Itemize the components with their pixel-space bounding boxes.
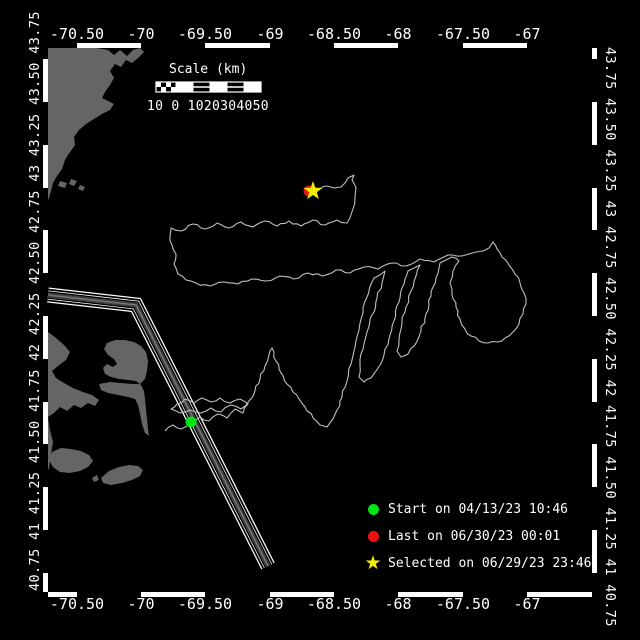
left-axis-labels: 40.75 41 41.25 41.50 41.75 42 42.25 42.5… — [27, 45, 43, 591]
longitude-tick-label: -67.50 — [436, 25, 490, 43]
scalebar-divider — [244, 82, 245, 92]
legend-selected-label: Selected on 06/29/23 23:46 — [388, 556, 592, 571]
glider-track-map-window: -70.50-70-69.50-69-68.50-68-67.50-67 -70… — [0, 0, 640, 640]
longitude-tick-label: -67 — [513, 25, 540, 43]
legend-item-last: Last on 06/30/23 00:01 — [358, 523, 592, 550]
start-position-marker[interactable] — [186, 417, 197, 428]
axis-frame-band — [592, 444, 597, 487]
right-axis-labels: 43.75 43.50 43.25 43 42.75 42.50 42.25 4… — [602, 47, 618, 593]
axis-frame-band — [205, 43, 270, 48]
longitude-tick-label: -70 — [127, 25, 154, 43]
coastline-land — [101, 465, 143, 485]
longitude-tick-label: -69.50 — [178, 25, 232, 43]
coastline-land — [78, 185, 85, 191]
longitude-tick-label: -69 — [256, 595, 283, 613]
axis-frame-band — [592, 188, 597, 230]
axis-frame-band — [592, 273, 597, 316]
axis-frame-band — [43, 59, 48, 102]
scalebar-cell-stripe — [193, 86, 210, 88]
scalebar-cell — [176, 82, 193, 92]
longitude-tick-label: -67.50 — [436, 595, 490, 613]
longitude-tick-label: -68.50 — [307, 25, 361, 43]
scalebar-cell-stripe — [227, 86, 244, 88]
axis-frame-band — [592, 102, 597, 145]
legend-item-start: Start on 04/13/23 10:46 — [358, 496, 592, 523]
axis-frame-band — [43, 230, 48, 273]
longitude-tick-label: -69.50 — [178, 595, 232, 613]
axis-frame-band — [592, 359, 597, 402]
longitude-tick-label: -70.50 — [50, 25, 104, 43]
longitude-tick-label: -68 — [384, 595, 411, 613]
axis-frame-band — [463, 43, 527, 48]
coastline-land — [69, 179, 77, 186]
axis-frame-band — [592, 48, 597, 59]
coastline-land — [92, 475, 99, 482]
longitude-tick-label: -70.50 — [50, 595, 104, 613]
scalebar-divider — [193, 82, 194, 92]
longitude-tick-label: -67 — [513, 595, 540, 613]
legend-last-label: Last on 06/30/23 00:01 — [388, 529, 560, 544]
scalebar-check — [166, 82, 171, 87]
last-marker-swatch — [358, 531, 388, 542]
longitude-tick-label: -69 — [256, 25, 283, 43]
scalebar-cell — [244, 82, 261, 92]
coastline-land — [48, 48, 144, 200]
axis-frame-band — [77, 43, 141, 48]
scalebar-check — [161, 87, 166, 92]
longitude-tick-label: -68 — [384, 25, 411, 43]
longitude-tick-label: -70 — [127, 595, 154, 613]
legend-start-label: Start on 04/13/23 10:46 — [388, 502, 568, 517]
axis-frame-band — [334, 43, 398, 48]
axis-frame-band — [43, 402, 48, 444]
scalebar-cell — [210, 82, 227, 92]
scalebar-divider — [210, 82, 211, 92]
scalebar-title: Scale (km) — [169, 62, 247, 77]
coastline-land — [48, 332, 99, 470]
axis-frame-band — [43, 316, 48, 359]
scalebar-divider — [227, 82, 228, 92]
scalebar-check — [171, 87, 176, 92]
shipping-lane-layer — [48, 295, 268, 566]
longitude-tick-label: -68.50 — [307, 595, 361, 613]
green-dot-icon — [368, 504, 379, 515]
red-dot-icon — [368, 531, 379, 542]
vehicle-track-line — [165, 175, 526, 431]
start-marker-swatch — [358, 504, 388, 515]
coastline-land — [99, 340, 149, 436]
scalebar-check — [156, 82, 161, 87]
star-icon: ★ — [364, 558, 381, 569]
axis-frame-band — [592, 530, 597, 573]
axis-frame-band — [43, 573, 48, 592]
scalebar-tick-labels: 10 0 1020304050 — [147, 99, 269, 114]
scalebar-divider — [176, 82, 177, 92]
axis-frame-band — [43, 145, 48, 188]
coastline-land — [49, 448, 93, 473]
legend: Start on 04/13/23 10:46 Last on 06/30/23… — [358, 496, 592, 577]
axis-frame-band — [43, 487, 48, 530]
coastline-land — [58, 181, 67, 188]
legend-item-selected: ★ Selected on 06/29/23 23:46 — [358, 550, 592, 577]
selected-marker-swatch: ★ — [358, 558, 388, 569]
